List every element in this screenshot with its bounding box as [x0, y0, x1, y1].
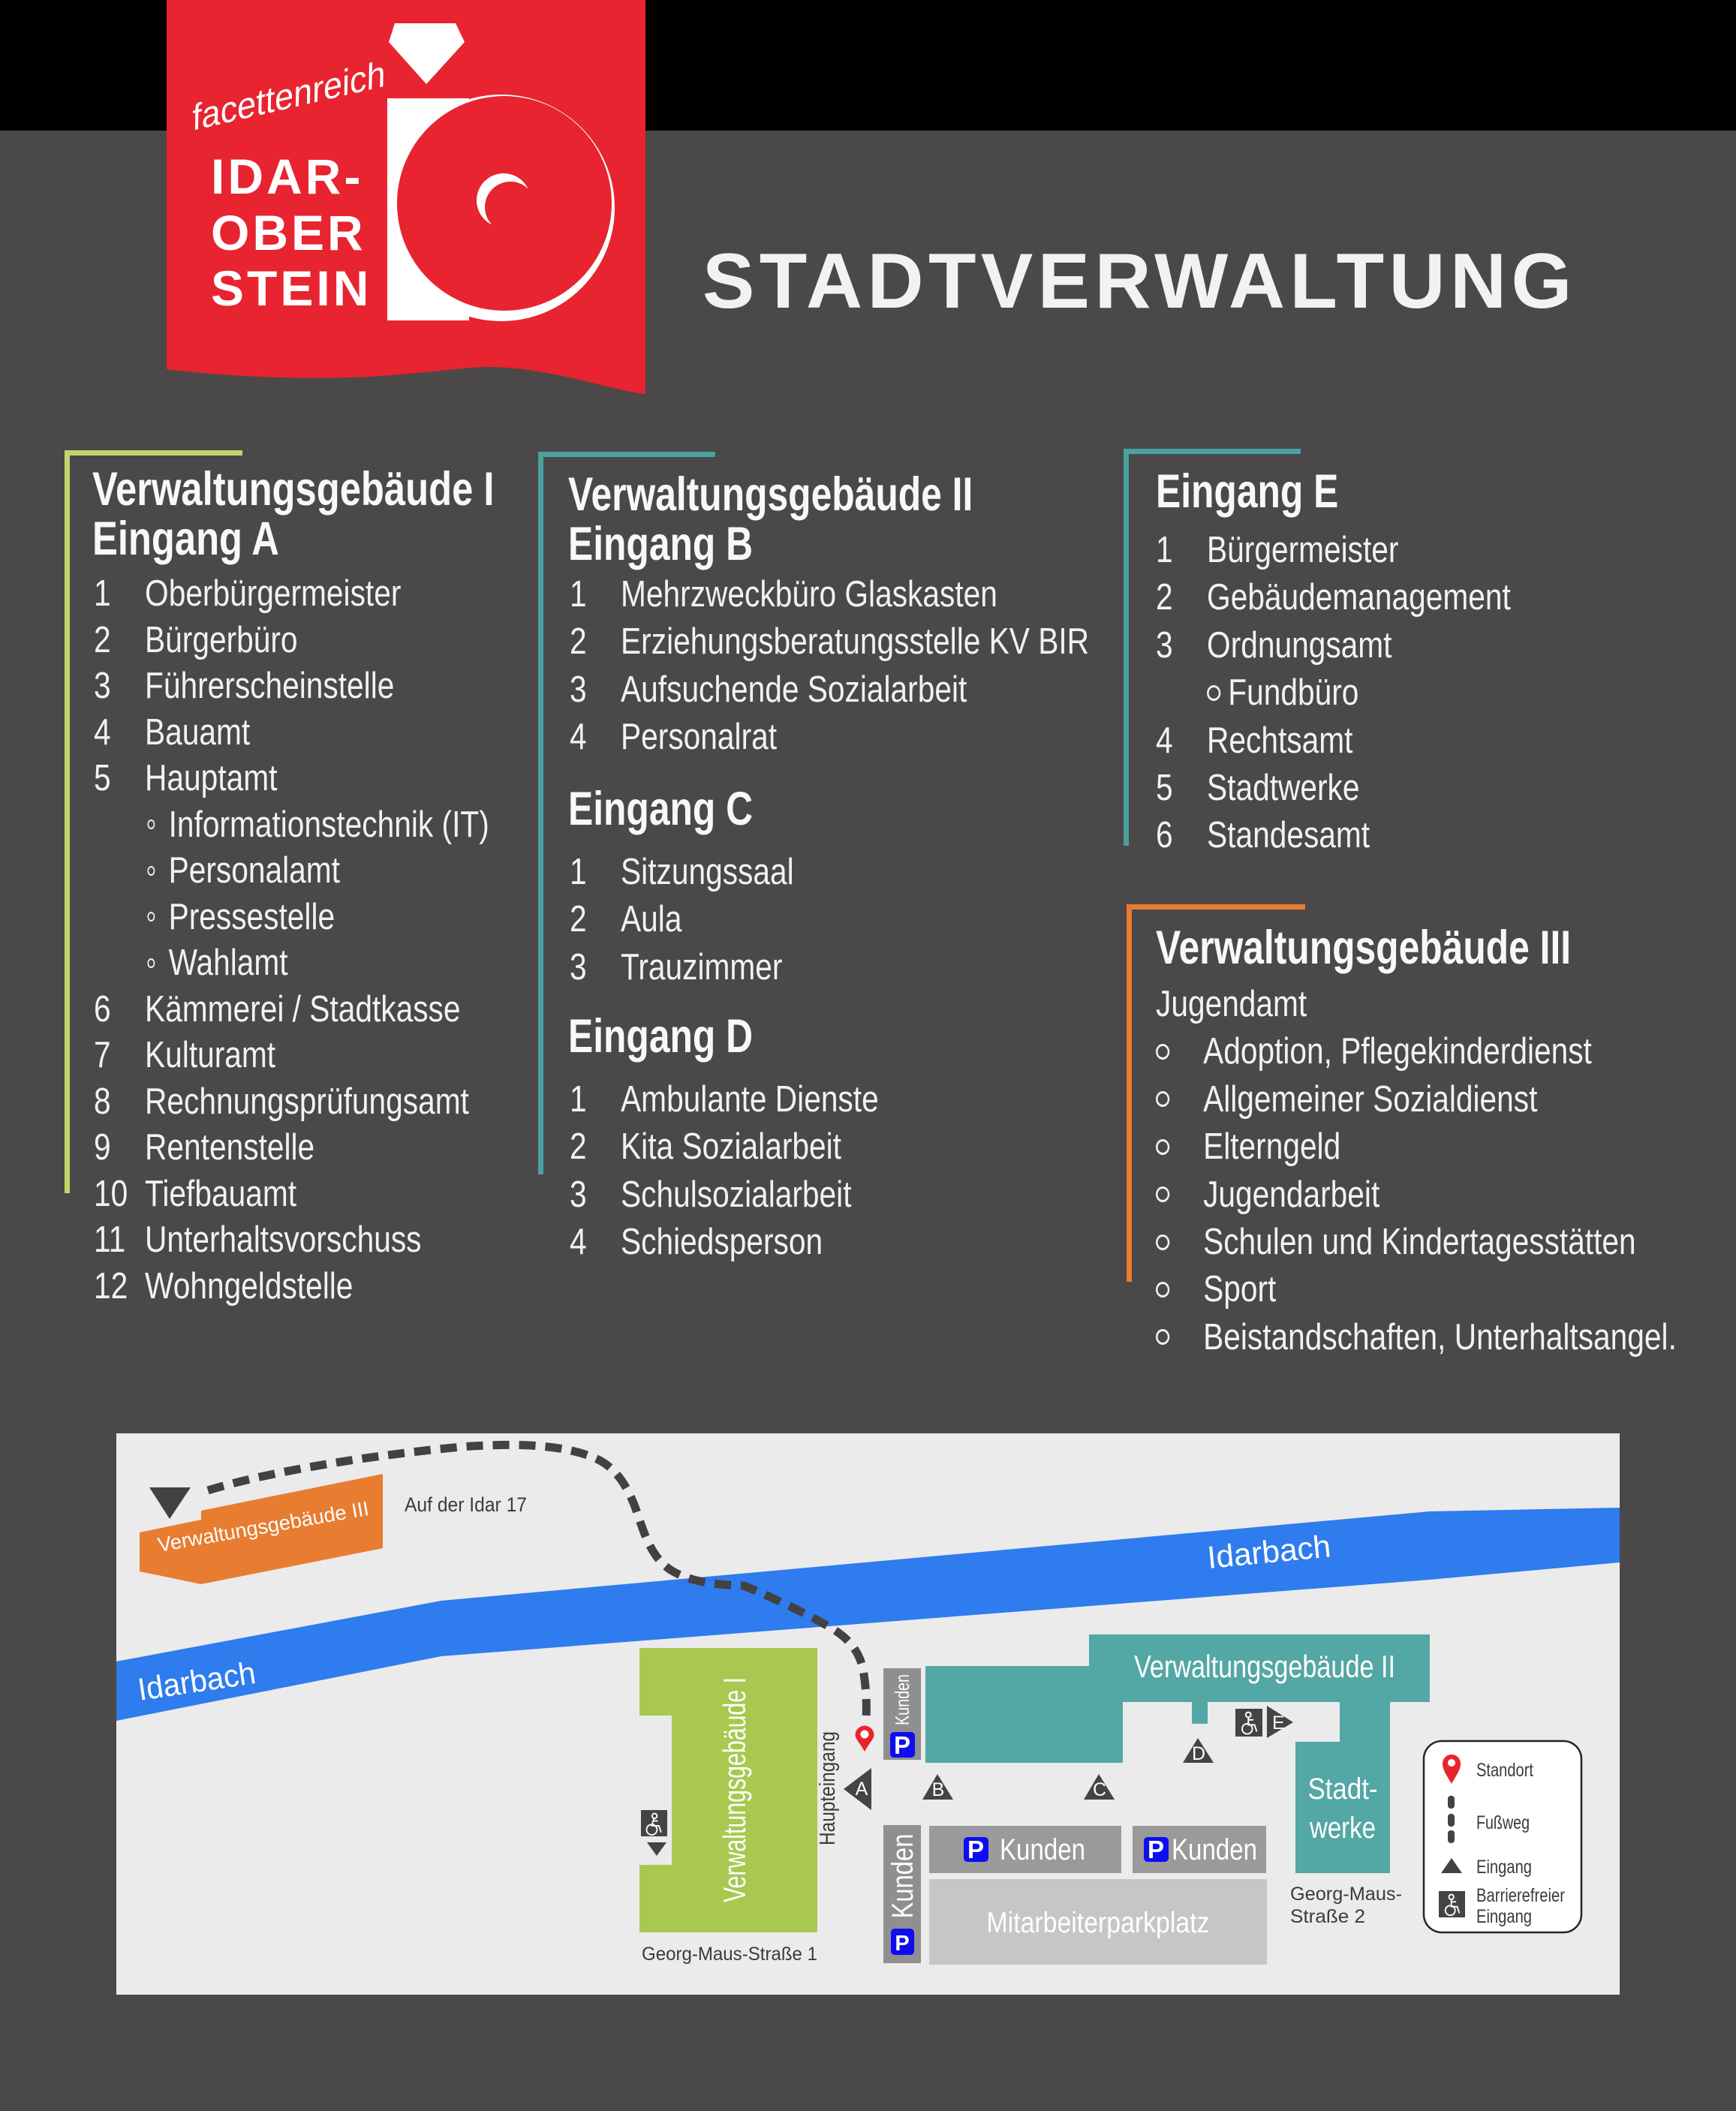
svg-text:Kunden: Kunden [1172, 1833, 1257, 1866]
svg-text:P: P [895, 1932, 909, 1956]
svg-text:Auf der Idar 17: Auf der Idar 17 [405, 1493, 527, 1516]
svg-text:C: C [1093, 1779, 1106, 1800]
svg-text:P: P [894, 1731, 910, 1759]
svg-text:Barrierefreier: Barrierefreier [1476, 1885, 1565, 1906]
svg-text:Kunden: Kunden [891, 1674, 913, 1725]
svg-text:Straße 2: Straße 2 [1290, 1906, 1365, 1927]
svg-text:Standort: Standort [1476, 1760, 1533, 1781]
svg-text:Kunden: Kunden [886, 1834, 919, 1919]
svg-text:werke: werke [1309, 1812, 1376, 1845]
svg-text:Eingang: Eingang [1476, 1906, 1532, 1927]
svg-text:STEIN: STEIN [211, 260, 372, 316]
svg-text:Eingang: Eingang [1476, 1857, 1532, 1878]
svg-text:P: P [1148, 1836, 1164, 1863]
svg-text:Georg-Maus-Straße 1: Georg-Maus-Straße 1 [642, 1944, 817, 1965]
svg-text:Verwaltungsgebäude II: Verwaltungsgebäude II [1134, 1649, 1395, 1684]
svg-text:Kunden: Kunden [1000, 1833, 1085, 1866]
svg-text:B: B [932, 1779, 945, 1800]
svg-text:Fußweg: Fußweg [1476, 1812, 1530, 1833]
svg-text:OBER: OBER [211, 205, 366, 260]
svg-text:Verwaltungsgebäude I: Verwaltungsgebäude I [717, 1677, 752, 1902]
svg-text:E: E [1272, 1713, 1285, 1734]
svg-text:A: A [856, 1779, 868, 1800]
svg-text:Stadt-: Stadt- [1308, 1773, 1378, 1806]
svg-text:Mitarbeiterparkplatz: Mitarbeiterparkplatz [987, 1907, 1210, 1939]
svg-text:Georg-Maus-: Georg-Maus- [1290, 1884, 1402, 1905]
svg-text:IDAR-: IDAR- [211, 149, 363, 204]
svg-text:Haupteingang: Haupteingang [816, 1731, 840, 1845]
svg-text:D: D [1192, 1743, 1205, 1764]
svg-text:P: P [967, 1836, 984, 1863]
